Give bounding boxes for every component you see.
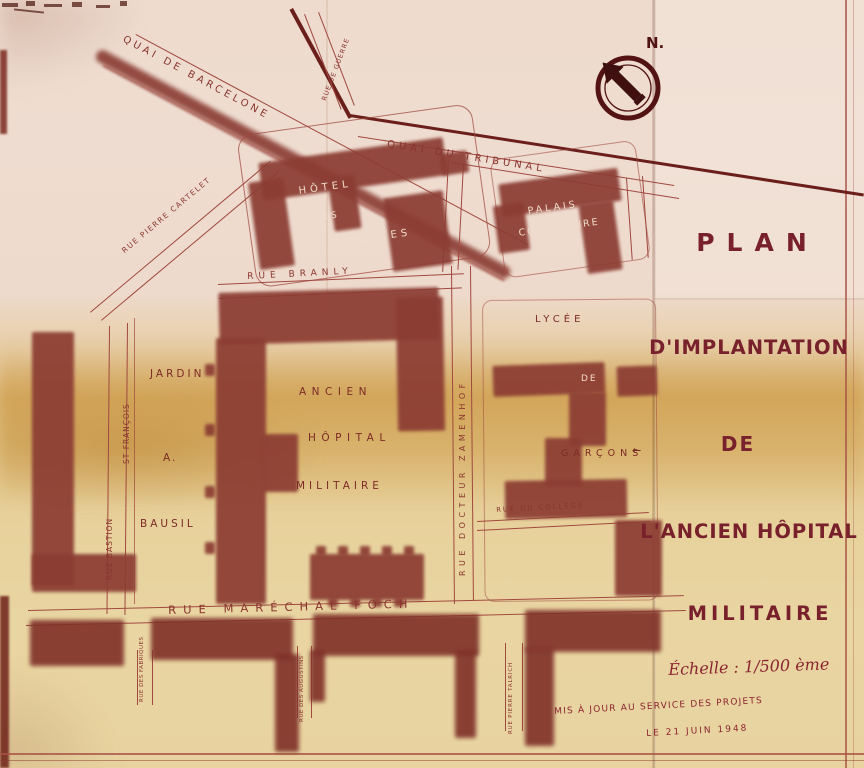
building-hopital-center-pavilion xyxy=(263,434,298,492)
street-label-rue-pierre-cartelet: RUE PIERRE CARTELET xyxy=(120,175,213,255)
building-south-slab-4 xyxy=(525,610,661,652)
edge-mark xyxy=(26,1,35,6)
title-line-dimplantation: D'IMPLANTATION xyxy=(638,336,860,359)
building-south-slab-1 xyxy=(30,620,124,666)
edge-mark xyxy=(120,1,127,6)
label-bausil: BAUSIL xyxy=(140,518,196,530)
label-jardin: JARDIN xyxy=(150,368,204,380)
paper-corner-stain-bottomleft xyxy=(0,590,220,768)
left-edge-strip-bottom xyxy=(0,596,9,768)
left-edge-strip-top xyxy=(0,50,7,134)
edge-mark xyxy=(44,4,62,7)
building-crenellation xyxy=(316,546,326,556)
building-crenellation xyxy=(404,546,414,556)
building-buttress xyxy=(205,364,215,376)
building-lycee-east-annex xyxy=(616,365,657,396)
label-hopital: HÔPITAL xyxy=(308,432,391,444)
crease-right xyxy=(655,298,864,300)
building-buttress xyxy=(205,542,215,554)
title-line-lancien-hopital: L'ANCIEN HÔPITAL xyxy=(636,520,862,543)
building-buttress xyxy=(205,424,215,436)
label-militaire: MILITAIRE xyxy=(296,480,383,492)
building-lycee-step-wing xyxy=(545,438,582,486)
road-south-street3-b xyxy=(522,643,523,731)
building-crenellation xyxy=(338,546,348,556)
building-west-block-horizontal xyxy=(32,554,136,592)
label-garcons: GARÇONS xyxy=(561,448,643,459)
label-lycee: LYCÉE xyxy=(535,314,584,325)
title-line-plan: PLAN xyxy=(660,228,855,257)
street-label-rue-docteur-zamenhof: RUE DOCTEUR ZAMENHOF xyxy=(458,379,467,576)
label-ancien: ANCIEN xyxy=(299,386,372,398)
building-south-arm-2b xyxy=(310,650,325,702)
building-west-block-vertical xyxy=(32,332,74,586)
street-label-st-francois: ST FRANÇOIS xyxy=(122,403,131,464)
building-south-slab-2 xyxy=(151,618,293,660)
edge-mark xyxy=(96,5,110,8)
road-south-street3-a xyxy=(505,643,506,731)
road-south-street1-a xyxy=(137,650,138,705)
street-label-rue-pierre-talrich: RUE PIERRE TALRICH xyxy=(508,662,514,734)
frame-line-bottom-2 xyxy=(0,760,864,761)
building-hopital-east-wing xyxy=(396,297,445,432)
north-label: N. xyxy=(646,34,664,52)
scanned-site-plan: ← xyxy=(0,0,864,768)
title-line-militaire: MILITAIRE xyxy=(660,602,860,625)
building-south-arm-3 xyxy=(455,650,476,738)
building-crenellation xyxy=(360,546,370,556)
street-label-rue-bastion: RUE BASTION xyxy=(105,518,114,580)
title-line-de: DE xyxy=(638,432,838,456)
building-south-arm-2 xyxy=(275,654,299,752)
label-jardin-a: A. xyxy=(163,452,177,464)
building-lycee-south-bar xyxy=(505,479,628,519)
street-label-rue-des-fabriques: RUE DES FABRIQUES xyxy=(139,637,145,702)
building-hopital-south-pavilion xyxy=(310,554,424,600)
river-bank-left xyxy=(290,8,352,119)
building-south-arm-4 xyxy=(525,648,554,746)
frame-line-bottom xyxy=(0,753,864,755)
frame-line-right xyxy=(845,0,847,768)
revision-note-line1: MIS À JOUR AU SERVICE DES PROJETS xyxy=(554,696,763,717)
scale-note: Échelle : 1/500 ème xyxy=(668,654,830,679)
edge-mark xyxy=(72,2,82,7)
building-hopital-west-wing xyxy=(216,338,266,604)
revision-note-line2: LE 21 JUIN 1948 xyxy=(646,724,749,739)
street-label-rue-des-augustins: RUE DES AUGUSTINS xyxy=(299,655,305,722)
label-lycee-de: DE xyxy=(581,374,598,384)
building-buttress xyxy=(205,486,215,498)
edge-mark xyxy=(2,3,18,7)
frame-line-right-2 xyxy=(853,0,854,768)
building-south-slab-3 xyxy=(313,614,479,656)
building-crenellation xyxy=(382,546,392,556)
